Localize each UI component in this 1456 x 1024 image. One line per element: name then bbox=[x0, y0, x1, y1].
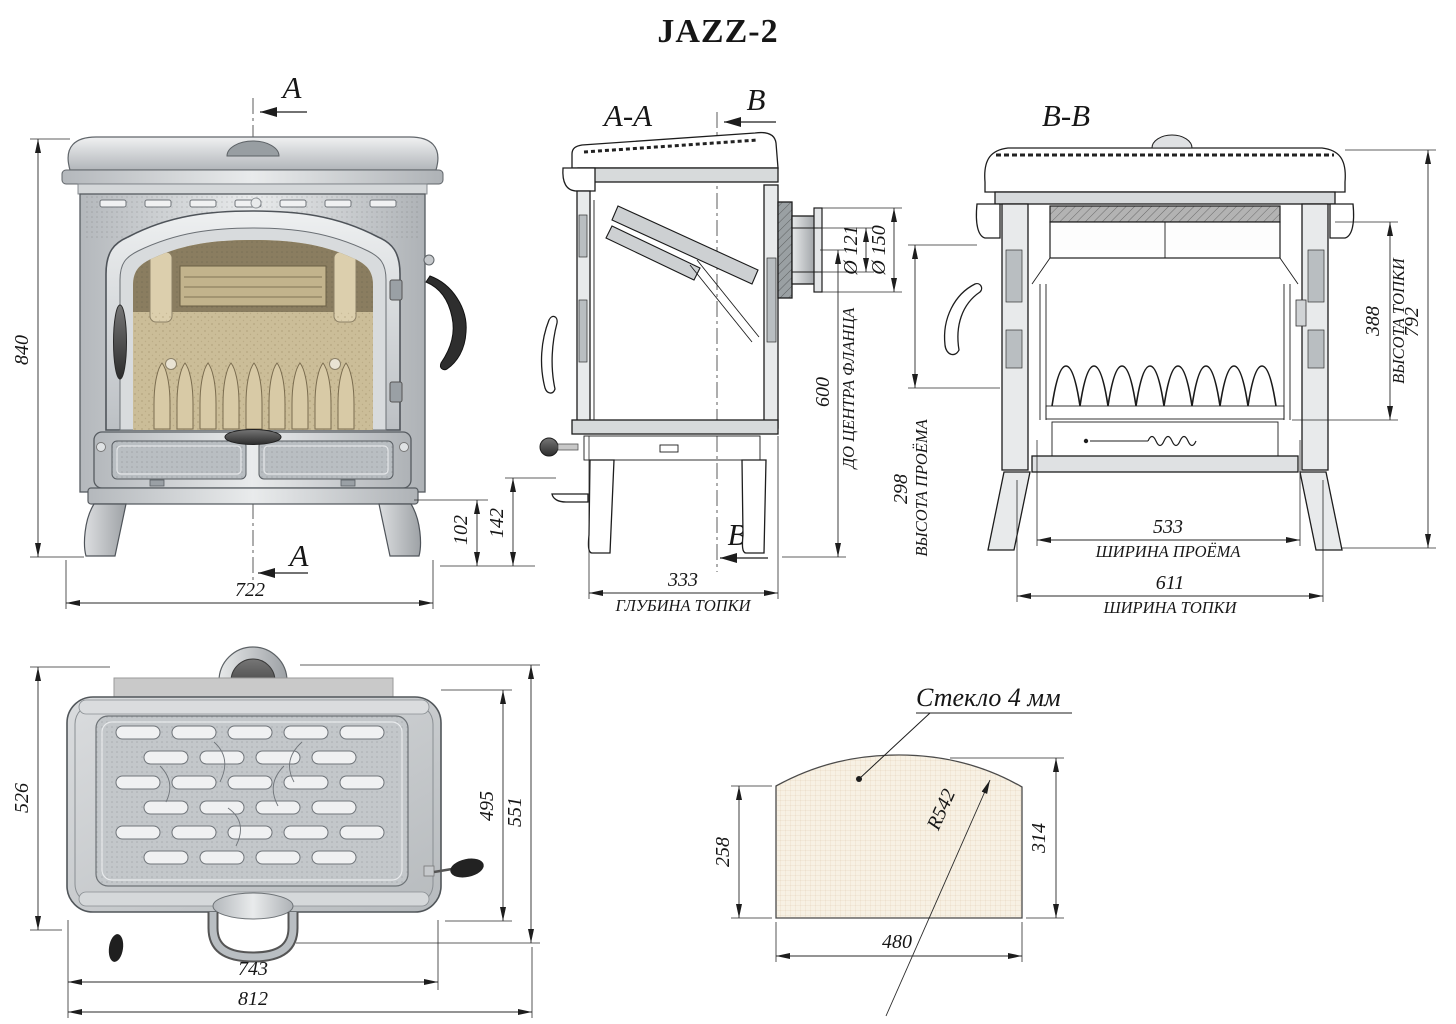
side-lever-handle bbox=[449, 856, 486, 881]
flange-pipe bbox=[792, 216, 816, 284]
door-hinge-upper bbox=[390, 280, 402, 300]
dim-333: 333 bbox=[667, 569, 698, 591]
dim-526: 526 bbox=[11, 783, 33, 813]
air-control-knob bbox=[540, 438, 558, 456]
bb-door-handle bbox=[945, 284, 982, 355]
bb-leg-right bbox=[1300, 472, 1342, 550]
glass-detail: Стекло 4 мм 258 314 480 R542 bbox=[712, 683, 1072, 1016]
door-latch-handle bbox=[114, 305, 127, 379]
aa-door-handle bbox=[542, 316, 558, 393]
front-view: A A 840 722 102 bbox=[11, 70, 535, 609]
dim-533: 533 bbox=[1153, 516, 1183, 538]
firebox-interior bbox=[133, 240, 373, 430]
door-hinge-lower bbox=[390, 382, 402, 402]
ash-lip bbox=[552, 494, 588, 502]
front-leg-left bbox=[85, 504, 126, 556]
rear-heat-shield bbox=[114, 678, 393, 698]
technical-drawing: JAZZ-2 bbox=[0, 0, 1456, 1024]
dim-611-caption: ШИРИНА ТОПКИ bbox=[1102, 598, 1237, 617]
ash-drawer-handle bbox=[225, 430, 281, 445]
top-view: 526 495 551 743 812 bbox=[11, 647, 540, 1018]
flame-tines bbox=[154, 363, 354, 429]
dim-102: 102 bbox=[450, 515, 472, 545]
top-shoulder bbox=[78, 184, 427, 194]
drawer-clip-right bbox=[341, 480, 355, 486]
section-mark-a-bottom: A bbox=[288, 538, 310, 573]
dim-792: 792 bbox=[1401, 307, 1423, 337]
dim-611: 611 bbox=[1156, 572, 1185, 594]
dim-333-caption: ГЛУБИНА ТОПКИ bbox=[614, 596, 751, 615]
dim-722: 722 bbox=[235, 579, 265, 601]
dim-600-caption: ДО ЦЕНТРА ФЛАНЦА bbox=[839, 307, 858, 471]
bb-leg-left bbox=[988, 472, 1030, 550]
section-bb-label: B-B bbox=[1042, 98, 1090, 133]
front-leg-right bbox=[379, 504, 420, 556]
dim-600: 600 bbox=[812, 377, 834, 407]
dim-314: 314 bbox=[1028, 823, 1050, 854]
drawing-sheet: JAZZ-2 bbox=[0, 0, 1456, 1024]
dim-743: 743 bbox=[238, 958, 268, 980]
section-mark-a-top: A bbox=[281, 70, 303, 105]
glass-texture bbox=[776, 755, 1022, 918]
section-bb-view: B-B 298 bbox=[890, 98, 1436, 617]
hinge-pin bbox=[107, 933, 125, 963]
side-knob bbox=[424, 255, 434, 265]
glass-label: Стекло 4 мм bbox=[916, 683, 1061, 712]
dim-480: 480 bbox=[882, 931, 912, 953]
section-mark-b-top: B bbox=[747, 82, 766, 117]
spring-handle bbox=[1148, 437, 1196, 446]
dim-dia-121: Ø 121 bbox=[840, 225, 862, 275]
dim-258: 258 bbox=[712, 837, 734, 867]
drawer-bolt-right bbox=[400, 443, 409, 452]
dim-812: 812 bbox=[238, 988, 268, 1010]
bb-geometry bbox=[945, 135, 1354, 550]
dim-142: 142 bbox=[486, 508, 508, 538]
dim-533-caption: ШИРИНА ПРОЁМА bbox=[1095, 542, 1242, 561]
dim-495: 495 bbox=[476, 791, 498, 821]
plinth bbox=[88, 488, 418, 504]
dim-388: 388 bbox=[1362, 306, 1384, 337]
dim-298-caption: ВЫСОТА ПРОЁМА bbox=[912, 418, 931, 556]
ash-panel-left-mesh bbox=[112, 441, 246, 479]
drawer-bolt-left bbox=[97, 443, 106, 452]
top-door-arch bbox=[213, 893, 293, 919]
dim-840: 840 bbox=[11, 335, 33, 365]
section-aa-view: A-A B B bbox=[486, 82, 902, 615]
dim-dia-150: Ø 150 bbox=[868, 225, 890, 275]
top-molding bbox=[62, 170, 443, 184]
section-aa-label: A-A bbox=[602, 98, 653, 133]
drawer-clip-left bbox=[150, 480, 164, 486]
flame-grate-profile bbox=[1052, 366, 1276, 406]
dim-551: 551 bbox=[504, 797, 526, 827]
door-handle-lever bbox=[426, 276, 466, 370]
dim-298: 298 bbox=[890, 474, 912, 504]
ash-panel-right-mesh bbox=[259, 441, 393, 479]
page-title: JAZZ-2 bbox=[657, 13, 778, 50]
aa-geometry bbox=[540, 133, 822, 553]
